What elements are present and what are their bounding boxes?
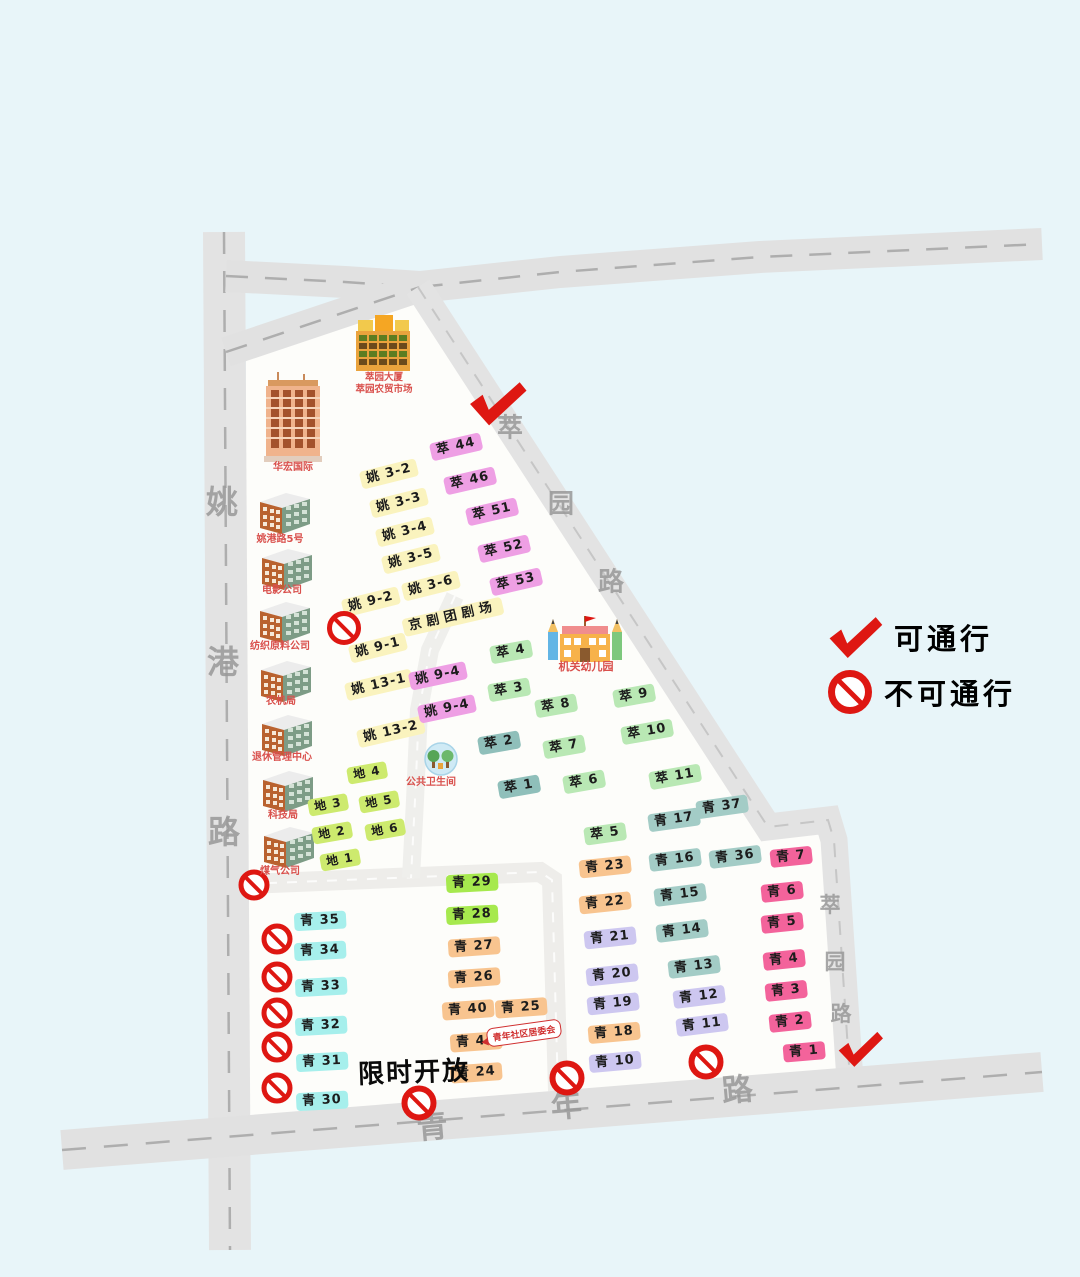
community-map: 姚港路萃园路萃园路青年路 姚 3-2姚 3-3姚 3-4姚 3-5姚 3-6姚 … bbox=[0, 0, 1080, 1277]
huahong-label: 华宏国际 bbox=[273, 462, 313, 475]
no-entry-icon bbox=[262, 924, 293, 955]
no-entry-icon bbox=[550, 1061, 585, 1096]
legend-pass-label: 可通行 bbox=[894, 616, 993, 658]
kindergarten-label: 机关幼儿园 bbox=[559, 660, 614, 674]
agrimachine-label: 农机局 bbox=[266, 696, 296, 709]
no-entry-icon bbox=[262, 1032, 293, 1063]
no-entry-icon bbox=[262, 998, 293, 1029]
no-entry-icon bbox=[327, 611, 361, 645]
no-entry-icon bbox=[828, 670, 872, 714]
film-company-label: 电影公司 bbox=[262, 585, 302, 598]
market-label-line1: 萃园大厦 bbox=[365, 372, 403, 384]
scitech-label: 科技局 bbox=[268, 810, 298, 823]
check-icon bbox=[465, 376, 528, 434]
legend-no-pass-row: 不可通行 bbox=[828, 670, 1048, 714]
check-icon bbox=[826, 612, 884, 663]
yaogang5-label: 姚港路5号 bbox=[257, 534, 304, 547]
no-entry-icon bbox=[402, 1086, 437, 1121]
legend: 可通行 不可通行 bbox=[828, 614, 1048, 724]
textile-label: 纺织原料公司 bbox=[250, 641, 310, 654]
legend-pass-row: 可通行 bbox=[828, 614, 1048, 660]
no-entry-icon bbox=[689, 1045, 724, 1080]
legend-no-pass-label: 不可通行 bbox=[884, 671, 1016, 713]
limited-open-note: 限时开放 bbox=[357, 1050, 470, 1091]
public-toilet-label: 公共卫生间 bbox=[406, 777, 456, 790]
retire-center-label: 退休管理中心 bbox=[252, 752, 312, 765]
check-icon bbox=[836, 1028, 885, 1073]
gas-company-label: 煤气公司 bbox=[260, 866, 300, 879]
no-entry-icon bbox=[262, 962, 293, 993]
no-entry-icon bbox=[262, 1073, 293, 1104]
market-label-line2: 萃园农贸市场 bbox=[355, 384, 412, 396]
